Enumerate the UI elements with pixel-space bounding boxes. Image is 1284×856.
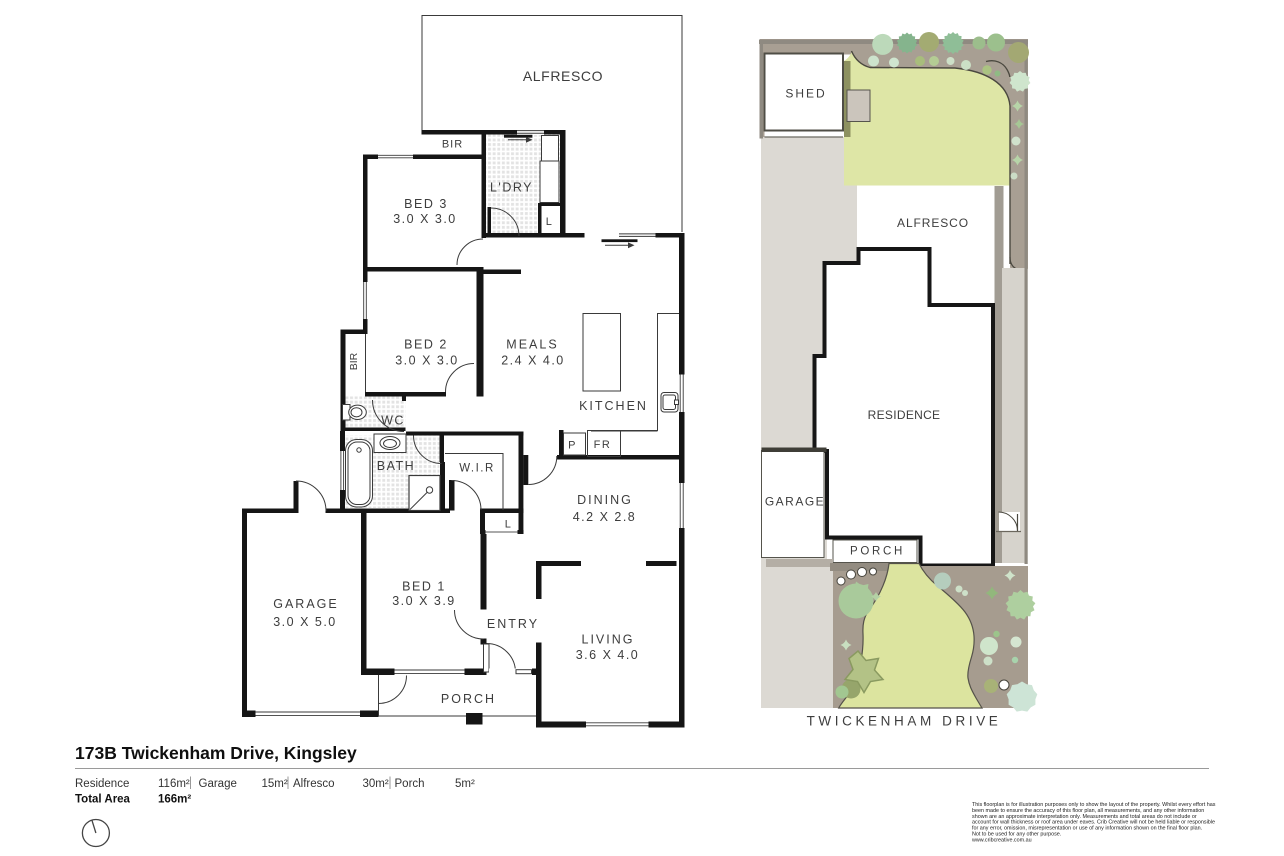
- svg-text:116m²: 116m²: [158, 778, 190, 790]
- svg-text:WC: WC: [381, 414, 405, 428]
- svg-text:P: P: [568, 440, 577, 452]
- svg-text:TWICKENHAM DRIVE: TWICKENHAM DRIVE: [807, 714, 1002, 729]
- svg-text:5m²: 5m²: [455, 778, 475, 790]
- svg-text:15m²: 15m²: [262, 778, 288, 790]
- svg-text:Porch: Porch: [395, 778, 425, 790]
- svg-text:SHED: SHED: [785, 87, 826, 101]
- svg-text:L'DRY: L'DRY: [490, 181, 533, 195]
- svg-text:GARAGE: GARAGE: [273, 597, 339, 611]
- svg-text:BED 2: BED 2: [404, 338, 448, 352]
- svg-text:RESIDENCE: RESIDENCE: [868, 408, 941, 422]
- svg-text:ALFRESCO: ALFRESCO: [523, 68, 603, 84]
- svg-text:DINING: DINING: [577, 493, 633, 507]
- svg-text:173B Twickenham Drive, Kingsle: 173B Twickenham Drive, Kingsley: [75, 743, 357, 763]
- svg-text:GARAGE: GARAGE: [765, 495, 825, 509]
- svg-text:3.0 X 3.0: 3.0 X 3.0: [395, 354, 459, 368]
- svg-text:Alfresco: Alfresco: [293, 778, 335, 790]
- svg-text:BIR: BIR: [348, 352, 360, 370]
- svg-text:W.I.R: W.I.R: [459, 463, 495, 475]
- svg-text:166m²: 166m²: [158, 794, 191, 806]
- svg-text:BED 3: BED 3: [404, 197, 448, 211]
- svg-text:3.6 X 4.0: 3.6 X 4.0: [576, 648, 640, 662]
- svg-text:ENTRY: ENTRY: [487, 617, 539, 631]
- svg-text:Garage: Garage: [199, 778, 237, 790]
- svg-text:PORCH: PORCH: [850, 546, 905, 558]
- svg-text:3.0 X 3.0: 3.0 X 3.0: [393, 212, 457, 226]
- svg-text:L: L: [505, 519, 513, 531]
- svg-text:3.0 X 3.9: 3.0 X 3.9: [392, 594, 456, 608]
- svg-text:BIR: BIR: [442, 139, 463, 151]
- svg-text:MEALS: MEALS: [506, 338, 558, 352]
- svg-text:BATH: BATH: [377, 459, 415, 473]
- svg-text:ALFRESCO: ALFRESCO: [897, 216, 969, 230]
- svg-text:3.0 X 5.0: 3.0 X 5.0: [273, 615, 337, 629]
- svg-text:Total Area: Total Area: [75, 794, 131, 806]
- svg-text:BED 1: BED 1: [402, 580, 446, 594]
- svg-text:Residence: Residence: [75, 778, 129, 790]
- svg-text:KITCHEN: KITCHEN: [579, 399, 648, 413]
- svg-text:4.2 X 2.8: 4.2 X 2.8: [573, 510, 637, 524]
- svg-text:L: L: [546, 216, 554, 228]
- svg-text:LIVING: LIVING: [582, 633, 635, 647]
- svg-text:www.cribcreative.com.au: www.cribcreative.com.au: [971, 837, 1032, 843]
- svg-text:2.4 X 4.0: 2.4 X 4.0: [501, 354, 565, 368]
- svg-text:PORCH: PORCH: [441, 692, 496, 706]
- svg-text:FR: FR: [594, 439, 612, 451]
- svg-text:30m²: 30m²: [363, 778, 389, 790]
